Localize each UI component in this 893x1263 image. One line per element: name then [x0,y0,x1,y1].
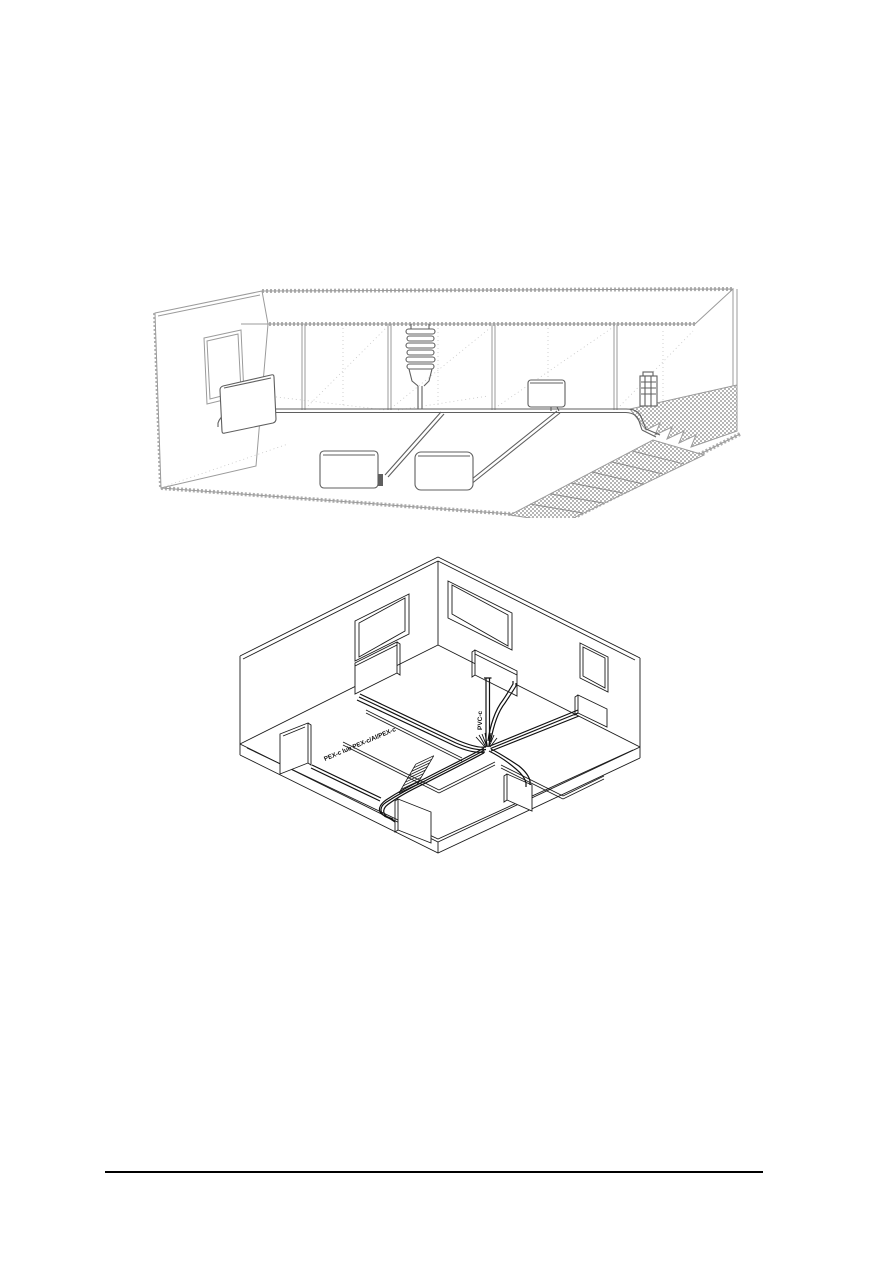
room-shell [240,557,640,853]
radiator-bottom-right [504,774,532,811]
distribution-pipe-label: PEX-c lub PEX-c/Al/PEX-c [323,726,397,763]
window-right [580,643,608,692]
manifold-cabinet [640,372,657,406]
pipe-bundle-right [490,710,579,751]
riser-pipe-label: PVC-c [477,710,484,730]
radiator-mid [528,380,565,411]
radiator-bottom-centre [395,799,431,843]
heating-elements [218,324,660,490]
partitions [343,710,604,799]
footer-rule [105,1171,763,1173]
isometric-floorplan-figure: PVC-c PEX-c lub PEX-c/Al/PEX-c [233,548,663,878]
pipe-bundle-left [357,694,486,752]
main-pipe [218,409,660,437]
document-page: PVC-c PEX-c lub PEX-c/Al/PEX-c [0,0,893,1263]
window-corner [448,581,512,650]
cutaway-section-figure [148,276,762,518]
radiator-front-right [415,452,473,490]
radiator-front-left [320,451,378,488]
radiator-lower-left [280,723,311,774]
manifold [406,324,435,409]
